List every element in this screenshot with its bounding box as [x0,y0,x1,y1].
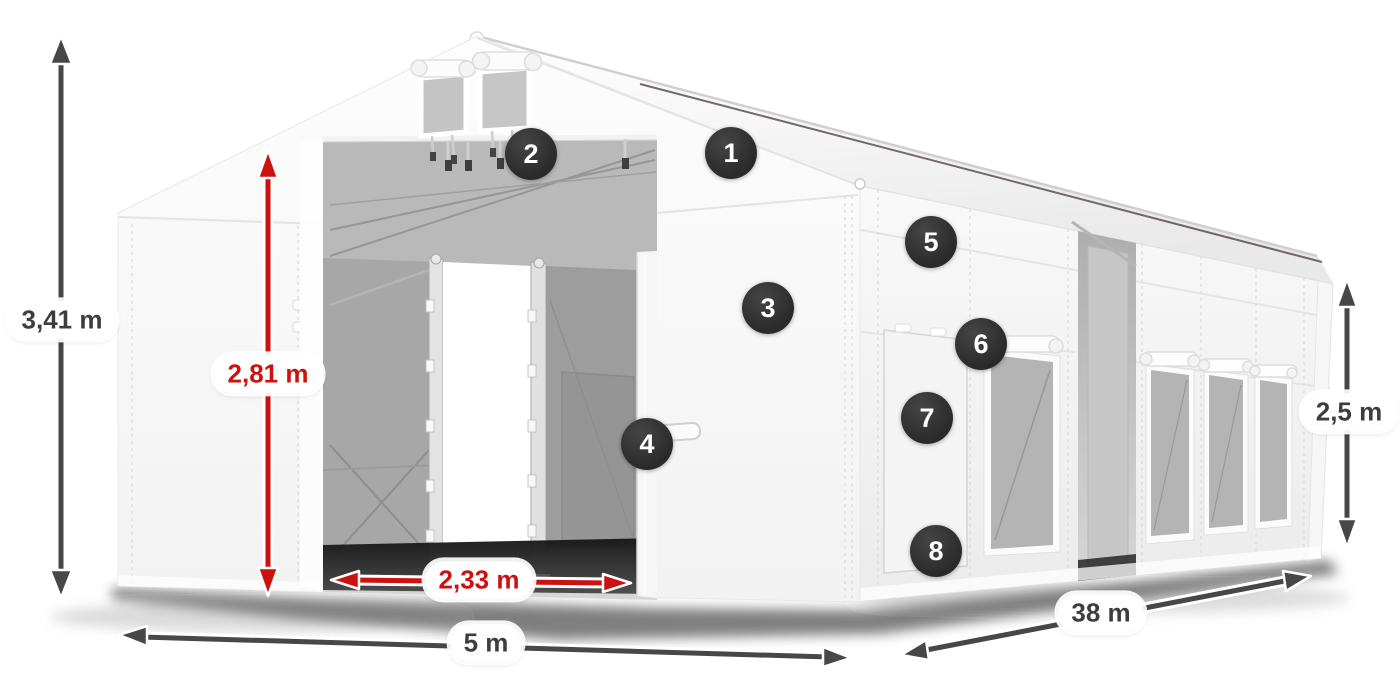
callout-badge-6: 6 [955,318,1007,370]
side-window-3 [1199,359,1254,535]
side-window-4 [1250,365,1297,529]
callout-badge-3: 3 [742,282,794,334]
dimension-label-door-width: 2,33 m [426,561,533,598]
eave-pole-cap [855,179,865,189]
interior-mesh-left [323,258,440,590]
callout-badge-4: 4 [621,418,673,470]
front-door-opening [300,137,657,600]
side-window-1 [981,336,1063,556]
see-through-gap [443,262,533,548]
tent-illustration [0,0,1400,700]
callout-badge-7: 7 [901,392,953,444]
dimension-label-side-height: 2,5 m [1303,393,1396,430]
tent-dimension-diagram: 3,41 m 2,81 m 2,33 m 5 m 38 m 2,5 m 1 2 … [0,0,1400,700]
dimension-label-width: 5 m [451,624,522,661]
interior-mesh-far [546,266,637,548]
dimension-label-clear-height: 2,81 m [215,355,322,392]
callout-badge-5: 5 [905,216,957,268]
dimension-label-length: 38 m [1058,594,1143,631]
dimension-label-total-height: 3,41 m [9,301,116,338]
side-window-2 [1140,352,1200,544]
callout-badge-8: 8 [910,525,962,577]
callout-badge-2: 2 [505,128,557,180]
callout-badge-1: 1 [705,127,757,179]
side-wall-open-gap [1072,222,1136,581]
